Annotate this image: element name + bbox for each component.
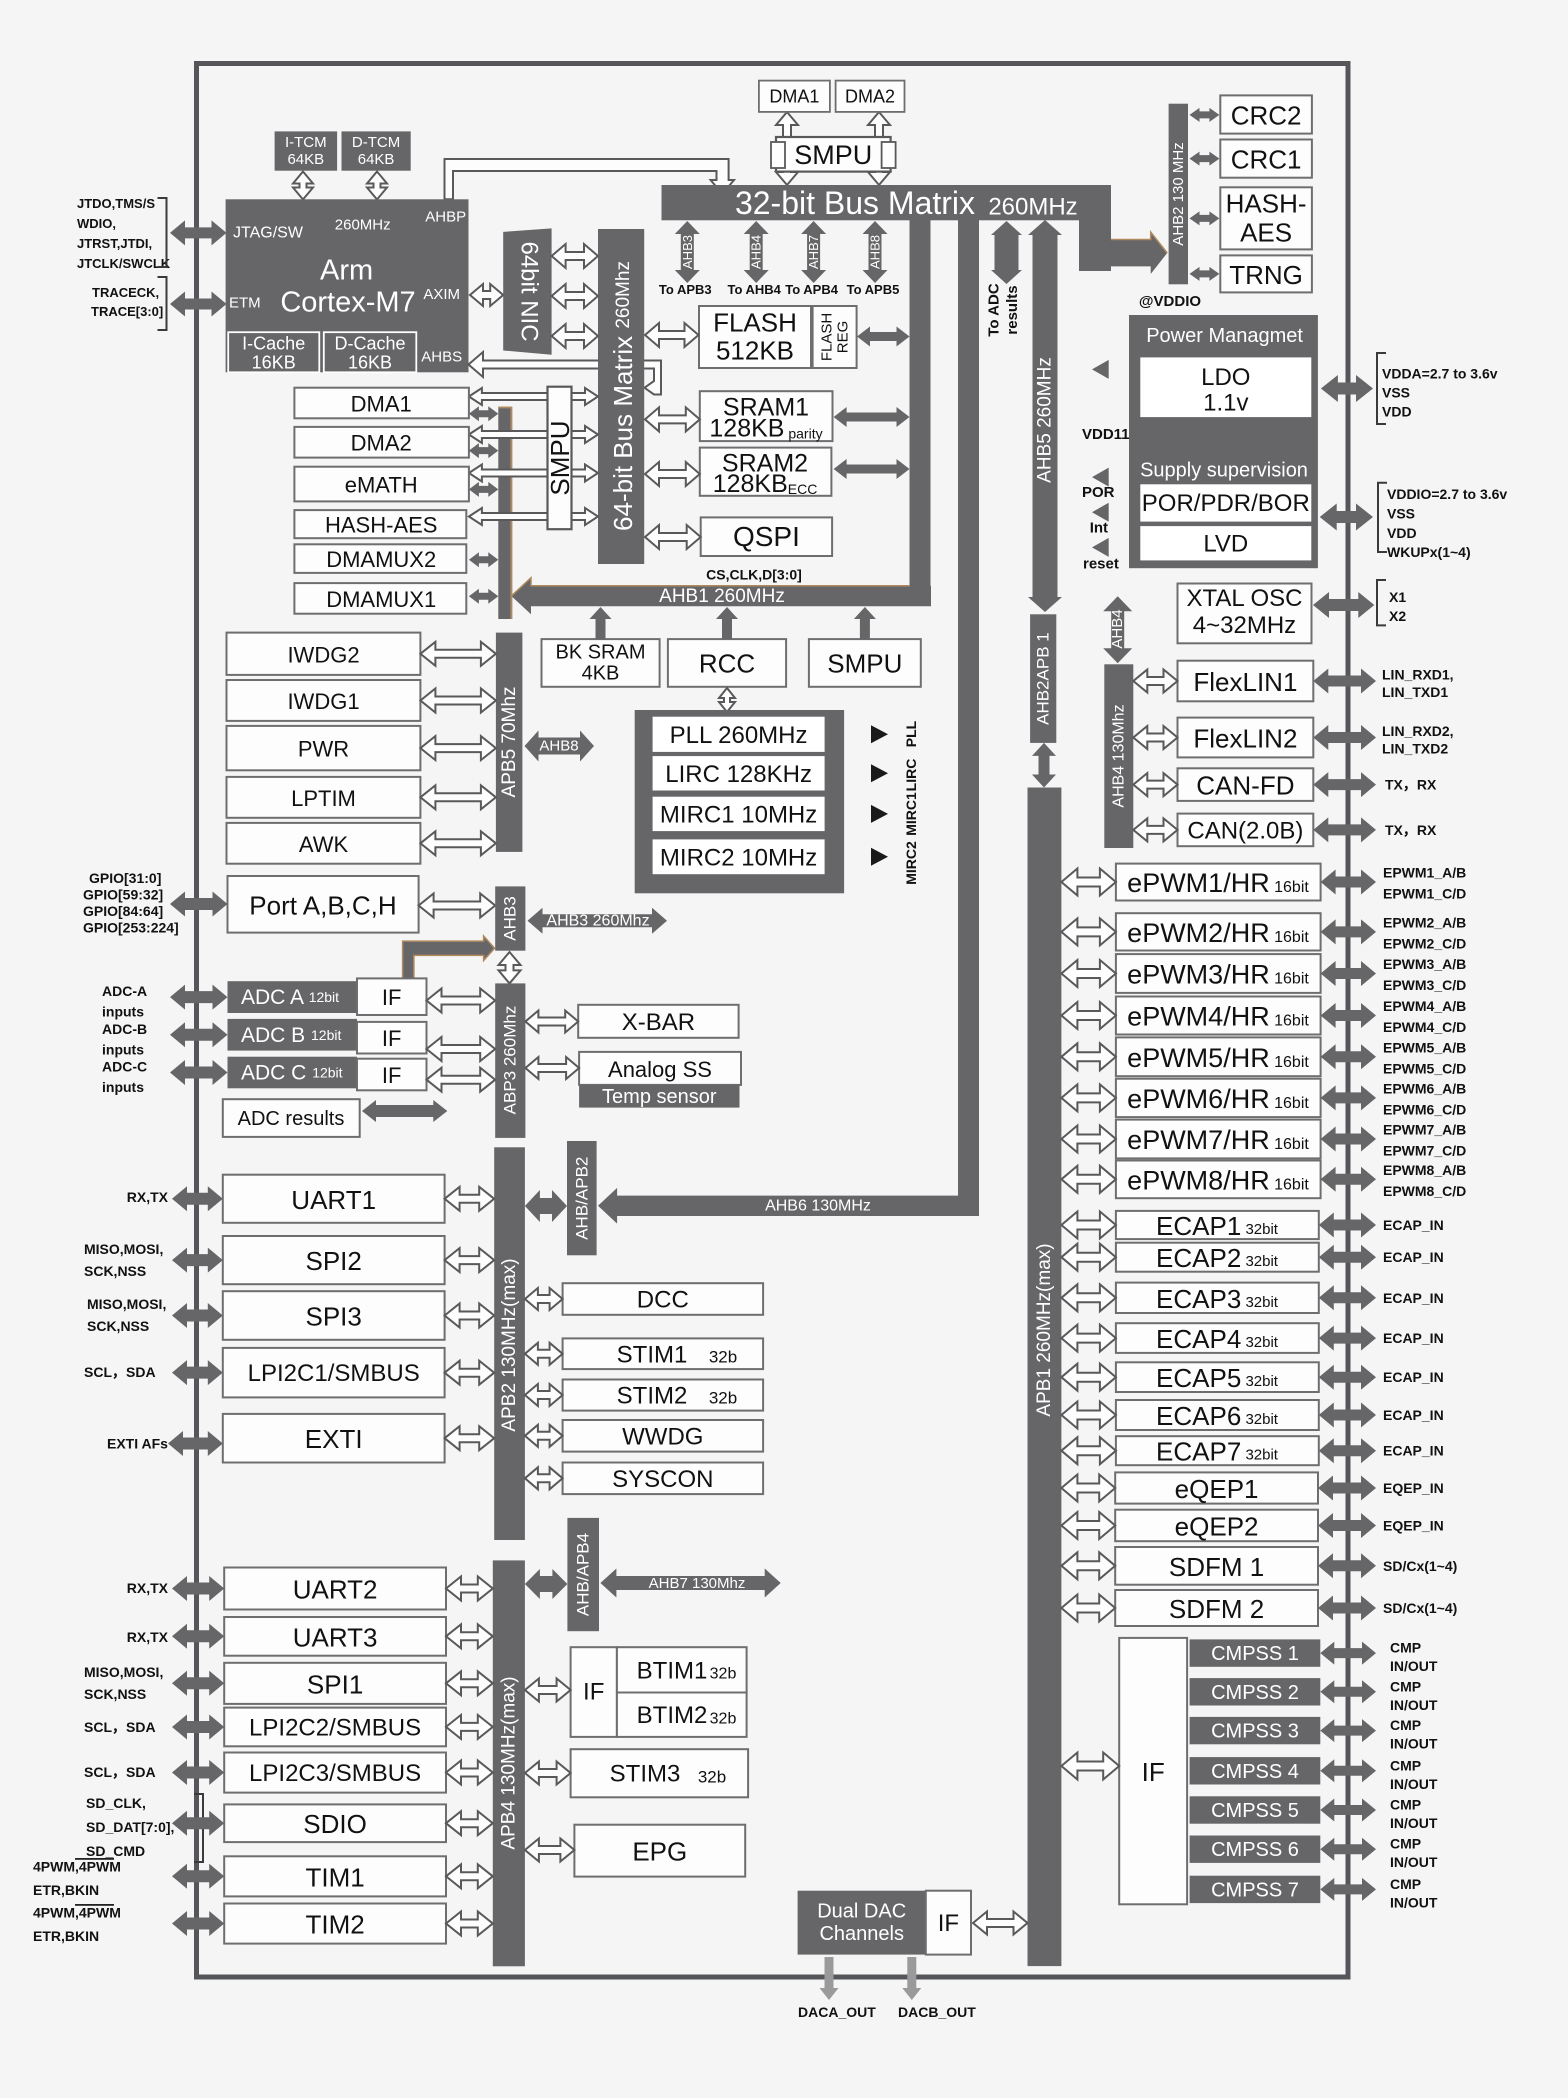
svg-text:results: results bbox=[1004, 285, 1021, 334]
svg-text:CMP: CMP bbox=[1390, 1836, 1421, 1852]
svg-text:WKUPx(1~4): WKUPx(1~4) bbox=[1387, 544, 1471, 560]
svg-text:SDIO: SDIO bbox=[303, 1809, 367, 1839]
svg-text:VDD: VDD bbox=[1382, 404, 1412, 420]
svg-text:AWK: AWK bbox=[299, 832, 349, 857]
svg-text:EPWM2_A/B: EPWM2_A/B bbox=[1383, 914, 1466, 930]
svg-text:ECAP_IN: ECAP_IN bbox=[1383, 1443, 1444, 1459]
svg-text:IF: IF bbox=[1142, 1757, 1165, 1787]
svg-text:MIRC2: MIRC2 bbox=[903, 841, 919, 885]
svg-text:Cortex-M7: Cortex-M7 bbox=[280, 287, 415, 319]
svg-text:1.1v: 1.1v bbox=[1203, 390, 1248, 417]
svg-text:GPIO[31:0]: GPIO[31:0] bbox=[89, 870, 161, 886]
svg-text:eMATH: eMATH bbox=[345, 473, 418, 498]
svg-text:IWDG1: IWDG1 bbox=[287, 689, 359, 714]
svg-text:CMP: CMP bbox=[1390, 1757, 1421, 1773]
svg-text:CMP: CMP bbox=[1390, 1876, 1421, 1892]
svg-text:GPIO[253:224]: GPIO[253:224] bbox=[83, 919, 179, 935]
svg-text:HASH-: HASH- bbox=[1226, 189, 1307, 219]
svg-text:EQEP_IN: EQEP_IN bbox=[1383, 1480, 1444, 1496]
svg-text:LIN_RXD1,: LIN_RXD1, bbox=[1382, 667, 1454, 683]
svg-text:WWDG: WWDG bbox=[622, 1423, 703, 1450]
svg-text:EXTI AFs: EXTI AFs bbox=[107, 1436, 168, 1452]
svg-text:32b: 32b bbox=[709, 1389, 737, 1408]
svg-text:DACA_OUT: DACA_OUT bbox=[798, 2004, 876, 2020]
svg-text:CMP: CMP bbox=[1390, 1640, 1421, 1656]
svg-text:ECAP_IN: ECAP_IN bbox=[1383, 1290, 1444, 1306]
svg-text:IN/OUT: IN/OUT bbox=[1390, 1894, 1438, 1910]
svg-text:X1: X1 bbox=[1389, 589, 1406, 605]
svg-text:SD/Cx(1~4): SD/Cx(1~4) bbox=[1383, 1600, 1457, 1616]
svg-text:VSS: VSS bbox=[1382, 385, 1410, 401]
svg-text:FlexLIN1: FlexLIN1 bbox=[1193, 667, 1297, 697]
svg-text:CRC2: CRC2 bbox=[1231, 101, 1302, 131]
svg-text:64bit NIC: 64bit NIC bbox=[516, 241, 543, 341]
svg-text:AHB7: AHB7 bbox=[806, 235, 821, 269]
svg-text:Arm: Arm bbox=[320, 255, 373, 287]
svg-text:EPWM1_A/B: EPWM1_A/B bbox=[1383, 865, 1466, 881]
svg-text:AHB4: AHB4 bbox=[1109, 609, 1126, 648]
svg-text:TIM2: TIM2 bbox=[305, 1910, 364, 1940]
svg-text:IN/OUT: IN/OUT bbox=[1390, 1776, 1438, 1792]
svg-text:SPI3: SPI3 bbox=[306, 1302, 362, 1332]
svg-text:JTDO,TMS/S: JTDO,TMS/S bbox=[77, 196, 155, 211]
svg-text:TRACECK,: TRACECK, bbox=[92, 285, 159, 300]
svg-text:EPWM5_C/D: EPWM5_C/D bbox=[1383, 1060, 1466, 1076]
svg-text:ADC-C: ADC-C bbox=[102, 1059, 147, 1075]
svg-text:GPIO[84:64]: GPIO[84:64] bbox=[83, 903, 163, 919]
svg-text:32b: 32b bbox=[710, 1711, 737, 1728]
svg-text:APB2 130MHz(max): APB2 130MHz(max) bbox=[499, 1258, 520, 1431]
svg-text:DMAMUX2: DMAMUX2 bbox=[326, 547, 436, 572]
svg-text:IF: IF bbox=[583, 1679, 604, 1706]
svg-text:UART3: UART3 bbox=[293, 1622, 378, 1652]
svg-text:LPI2C1/SMBUS: LPI2C1/SMBUS bbox=[248, 1360, 420, 1387]
svg-text:512KB: 512KB bbox=[716, 336, 794, 366]
svg-text:VDDA=2.7 to 3.6v: VDDA=2.7 to 3.6v bbox=[1382, 365, 1498, 381]
svg-text:CMP: CMP bbox=[1390, 1717, 1421, 1733]
svg-text:AHB1 260MHz: AHB1 260MHz bbox=[659, 586, 785, 607]
svg-text:IN/OUT: IN/OUT bbox=[1390, 1736, 1438, 1752]
svg-text:AES: AES bbox=[1240, 218, 1292, 248]
svg-text:4PWM,4PWM: 4PWM,4PWM bbox=[33, 1905, 121, 1921]
svg-text:IF: IF bbox=[382, 1026, 402, 1051]
svg-text:EPWM2_C/D: EPWM2_C/D bbox=[1383, 935, 1466, 951]
svg-text:EPWM7_A/B: EPWM7_A/B bbox=[1383, 1122, 1466, 1138]
svg-text:SYSCON: SYSCON bbox=[612, 1466, 713, 1493]
svg-text:AHB2APB 1: AHB2APB 1 bbox=[1034, 632, 1053, 725]
svg-text:Temp sensor: Temp sensor bbox=[602, 1086, 717, 1108]
svg-text:DCC: DCC bbox=[637, 1287, 689, 1314]
svg-text:EPG: EPG bbox=[632, 1837, 687, 1867]
svg-text:eQEP1: eQEP1 bbox=[1175, 1474, 1259, 1504]
svg-text:IN/OUT: IN/OUT bbox=[1390, 1854, 1438, 1870]
svg-text:IN/OUT: IN/OUT bbox=[1390, 1658, 1438, 1674]
svg-text:To APB4: To APB4 bbox=[785, 282, 838, 297]
svg-text:I-Cache: I-Cache bbox=[242, 334, 305, 354]
svg-text:AHB/APB4: AHB/APB4 bbox=[574, 1533, 593, 1616]
svg-text:DMA1: DMA1 bbox=[769, 87, 819, 107]
svg-text:EPWM8_C/D: EPWM8_C/D bbox=[1383, 1183, 1466, 1199]
svg-text:AHB/APB2: AHB/APB2 bbox=[572, 1157, 591, 1240]
svg-text:16KB: 16KB bbox=[348, 353, 392, 373]
svg-text:AHBS: AHBS bbox=[421, 348, 462, 365]
svg-text:XTAL OSC: XTAL OSC bbox=[1186, 585, 1302, 612]
svg-text:32-bit Bus Matrix: 32-bit Bus Matrix bbox=[735, 185, 975, 221]
svg-text:LPI2C3/SMBUS: LPI2C3/SMBUS bbox=[249, 1760, 421, 1787]
svg-text:FlexLIN2: FlexLIN2 bbox=[1193, 724, 1297, 754]
svg-text:ECAP_IN: ECAP_IN bbox=[1383, 1330, 1444, 1346]
svg-text:RX,TX: RX,TX bbox=[127, 1189, 169, 1205]
svg-text:ADC-A: ADC-A bbox=[102, 983, 147, 999]
svg-text:SCL，SDA: SCL，SDA bbox=[84, 1764, 156, 1780]
svg-text:CMPSS 2: CMPSS 2 bbox=[1211, 1682, 1299, 1704]
svg-text:AHB8: AHB8 bbox=[868, 235, 883, 269]
svg-text:IN/OUT: IN/OUT bbox=[1390, 1697, 1438, 1713]
svg-text:4PWM,4PWM: 4PWM,4PWM bbox=[33, 1859, 121, 1875]
svg-text:LIN_TXD2: LIN_TXD2 bbox=[1382, 741, 1448, 757]
svg-text:TX，RX: TX，RX bbox=[1385, 822, 1437, 838]
svg-text:IWDG2: IWDG2 bbox=[287, 642, 359, 667]
svg-text:IF: IF bbox=[382, 1063, 402, 1088]
svg-text:ECAP_IN: ECAP_IN bbox=[1383, 1217, 1444, 1233]
svg-text:ADC results: ADC results bbox=[238, 1108, 345, 1130]
svg-text:32b: 32b bbox=[709, 1347, 737, 1366]
svg-text:@VDDIO: @VDDIO bbox=[1139, 293, 1201, 310]
svg-text:DACB_OUT: DACB_OUT bbox=[898, 2004, 976, 2020]
svg-text:ABP3 260Mhz: ABP3 260Mhz bbox=[500, 1006, 519, 1115]
svg-text:ECAP_IN: ECAP_IN bbox=[1383, 1407, 1444, 1423]
svg-text:ETR,BKIN: ETR,BKIN bbox=[33, 1882, 99, 1898]
svg-text:Port A,B,C,H: Port A,B,C,H bbox=[249, 890, 396, 920]
svg-text:260MHz: 260MHz bbox=[988, 194, 1077, 221]
svg-text:Supply supervision: Supply supervision bbox=[1140, 459, 1308, 481]
svg-text:FLASH: FLASH bbox=[819, 313, 836, 361]
svg-text:EPWM1_C/D: EPWM1_C/D bbox=[1383, 886, 1466, 902]
svg-text:X-BAR: X-BAR bbox=[622, 1009, 695, 1036]
svg-text:CAN-FD: CAN-FD bbox=[1196, 771, 1294, 801]
svg-text:EXTI: EXTI bbox=[305, 1424, 363, 1454]
svg-text:DMA2: DMA2 bbox=[351, 431, 412, 456]
svg-text:STIM3: STIM3 bbox=[610, 1761, 681, 1788]
svg-text:SCL，SDA: SCL，SDA bbox=[84, 1719, 156, 1735]
svg-text:SDFM 1: SDFM 1 bbox=[1169, 1552, 1264, 1582]
svg-text:64KB: 64KB bbox=[287, 151, 324, 168]
svg-text:32b: 32b bbox=[698, 1768, 726, 1787]
svg-text:LDO: LDO bbox=[1201, 364, 1250, 391]
svg-text:RX,TX: RX,TX bbox=[127, 1629, 169, 1645]
svg-text:AHB7 130Mhz: AHB7 130Mhz bbox=[649, 1575, 746, 1592]
svg-text:CMP: CMP bbox=[1390, 1797, 1421, 1813]
svg-text:SCK,NSS: SCK,NSS bbox=[87, 1318, 149, 1334]
svg-text:SPI1: SPI1 bbox=[307, 1669, 363, 1699]
svg-text:AHB4 130Mhz: AHB4 130Mhz bbox=[1110, 704, 1127, 807]
svg-text:VDDIO=2.7 to 3.6v: VDDIO=2.7 to 3.6v bbox=[1387, 486, 1507, 502]
svg-text:AHB4: AHB4 bbox=[749, 235, 764, 269]
svg-text:ECAP_IN: ECAP_IN bbox=[1383, 1249, 1444, 1265]
svg-text:JTAG/SW: JTAG/SW bbox=[233, 225, 304, 242]
svg-text:ETM: ETM bbox=[229, 295, 261, 312]
svg-text:APB4 130MHz(max): APB4 130MHz(max) bbox=[498, 1676, 519, 1849]
svg-text:EPWM6_C/D: EPWM6_C/D bbox=[1383, 1101, 1466, 1117]
svg-text:AHB3: AHB3 bbox=[500, 896, 519, 940]
svg-text:EPWM4_C/D: EPWM4_C/D bbox=[1383, 1019, 1466, 1035]
svg-text:AHB3 260Mhz: AHB3 260Mhz bbox=[546, 912, 649, 929]
svg-text:inputs: inputs bbox=[102, 1004, 144, 1020]
svg-text:HASH-AES: HASH-AES bbox=[325, 513, 437, 538]
svg-text:SD/Cx(1~4): SD/Cx(1~4) bbox=[1383, 1558, 1457, 1574]
svg-text:MISO,MOSI,: MISO,MOSI, bbox=[84, 1241, 163, 1257]
svg-text:TX，RX: TX，RX bbox=[1385, 777, 1437, 793]
svg-text:SD_CLK,: SD_CLK, bbox=[86, 1795, 146, 1811]
svg-text:RX,TX: RX,TX bbox=[127, 1580, 169, 1596]
svg-text:DMA2: DMA2 bbox=[845, 87, 895, 107]
svg-text:CMPSS 3: CMPSS 3 bbox=[1211, 1721, 1299, 1743]
svg-text:VSS: VSS bbox=[1387, 506, 1415, 522]
svg-text:FLASH: FLASH bbox=[713, 308, 797, 338]
svg-text:CMPSS 6: CMPSS 6 bbox=[1211, 1839, 1299, 1861]
svg-text:X2: X2 bbox=[1389, 608, 1406, 624]
svg-text:AHB8: AHB8 bbox=[539, 738, 578, 755]
svg-text:To APB5: To APB5 bbox=[847, 282, 900, 297]
svg-text:LIRC: LIRC bbox=[903, 759, 919, 792]
svg-text:CMPSS 5: CMPSS 5 bbox=[1211, 1800, 1299, 1822]
svg-text:TRACE[3:0]: TRACE[3:0] bbox=[91, 304, 163, 319]
svg-text:PWR: PWR bbox=[298, 737, 349, 762]
svg-text:APB5 70Mhz: APB5 70Mhz bbox=[499, 687, 520, 798]
svg-text:PLL 260MHz: PLL 260MHz bbox=[670, 722, 808, 749]
svg-text:QSPI: QSPI bbox=[733, 521, 800, 552]
svg-text:PLL: PLL bbox=[903, 720, 919, 747]
svg-text:POR/PDR/BOR: POR/PDR/BOR bbox=[1142, 490, 1310, 517]
svg-text:inputs: inputs bbox=[102, 1042, 144, 1058]
svg-text:SCK,NSS: SCK,NSS bbox=[84, 1686, 146, 1702]
svg-text:DMA1: DMA1 bbox=[351, 392, 412, 417]
svg-text:MIRC2 10MHz: MIRC2 10MHz bbox=[660, 844, 817, 871]
svg-text:inputs: inputs bbox=[102, 1079, 144, 1095]
svg-text:Power Managmet: Power Managmet bbox=[1146, 325, 1303, 347]
svg-text:EPWM8_A/B: EPWM8_A/B bbox=[1383, 1162, 1466, 1178]
svg-text:Analog SS: Analog SS bbox=[608, 1057, 712, 1082]
svg-text:TRNG: TRNG bbox=[1229, 260, 1303, 290]
svg-text:VDD: VDD bbox=[1387, 525, 1417, 541]
svg-text:SD_CMD: SD_CMD bbox=[86, 1843, 145, 1859]
svg-text:ECAP_IN: ECAP_IN bbox=[1383, 1369, 1444, 1385]
svg-text:STIM2: STIM2 bbox=[617, 1383, 688, 1410]
svg-text:UART2: UART2 bbox=[293, 1575, 378, 1605]
svg-text:ADC-B: ADC-B bbox=[102, 1021, 147, 1037]
svg-text:SCK,NSS: SCK,NSS bbox=[84, 1263, 146, 1279]
svg-text:BK SRAM: BK SRAM bbox=[555, 642, 645, 664]
svg-text:I-TCM: I-TCM bbox=[285, 134, 327, 151]
svg-text:AHB5 260MHz: AHB5 260MHz bbox=[1035, 357, 1056, 483]
svg-text:UART1: UART1 bbox=[291, 1185, 376, 1215]
svg-text:POR: POR bbox=[1082, 484, 1115, 501]
svg-text:4~32MHz: 4~32MHz bbox=[1193, 612, 1296, 639]
svg-text:LIN_TXD1: LIN_TXD1 bbox=[1382, 684, 1448, 700]
svg-text:SD_DAT[7:0],: SD_DAT[7:0], bbox=[86, 1819, 174, 1835]
svg-text:LIRC 128KHz: LIRC 128KHz bbox=[665, 761, 812, 788]
svg-text:MIRC1: MIRC1 bbox=[903, 792, 919, 836]
svg-text:SCL，SDA: SCL，SDA bbox=[84, 1364, 156, 1380]
svg-text:SPI2: SPI2 bbox=[306, 1246, 362, 1276]
svg-text:MISO,MOSI,: MISO,MOSI, bbox=[87, 1296, 166, 1312]
svg-text:CMPSS 7: CMPSS 7 bbox=[1211, 1879, 1299, 1901]
svg-text:RCC: RCC bbox=[699, 649, 755, 679]
svg-text:VDD11: VDD11 bbox=[1082, 426, 1130, 443]
svg-text:EPWM5_A/B: EPWM5_A/B bbox=[1383, 1039, 1466, 1055]
svg-text:SMPU: SMPU bbox=[827, 649, 902, 679]
svg-text:64KB: 64KB bbox=[358, 151, 395, 168]
svg-text:CAN(2.0B): CAN(2.0B) bbox=[1187, 817, 1303, 844]
svg-text:JTRST,JTDI,: JTRST,JTDI, bbox=[77, 236, 152, 251]
svg-text:SMPU: SMPU bbox=[545, 420, 575, 495]
svg-text:SDFM 2: SDFM 2 bbox=[1169, 1594, 1264, 1624]
svg-text:CRC1: CRC1 bbox=[1231, 145, 1302, 175]
svg-text:reset: reset bbox=[1083, 556, 1119, 573]
svg-text:REG: REG bbox=[835, 321, 852, 354]
svg-text:260MHz: 260MHz bbox=[335, 216, 391, 233]
svg-text:MIRC1 10MHz: MIRC1 10MHz bbox=[660, 801, 817, 828]
svg-text:TIM1: TIM1 bbox=[305, 1862, 364, 1892]
svg-text:AHB2 130 MHz: AHB2 130 MHz bbox=[1170, 142, 1187, 245]
svg-text:GPIO[59:32]: GPIO[59:32] bbox=[83, 886, 163, 902]
svg-text:To APB3: To APB3 bbox=[659, 282, 712, 297]
svg-text:AHBP: AHBP bbox=[425, 208, 466, 225]
svg-text:WDIO,: WDIO, bbox=[77, 216, 116, 231]
svg-text:Int: Int bbox=[1090, 520, 1108, 537]
svg-text:EPWM3_A/B: EPWM3_A/B bbox=[1383, 956, 1466, 972]
svg-text:EQEP_IN: EQEP_IN bbox=[1383, 1518, 1444, 1534]
svg-text:EPWM6_A/B: EPWM6_A/B bbox=[1383, 1080, 1466, 1096]
svg-text:Channels: Channels bbox=[819, 1923, 904, 1945]
svg-text:CMPSS 4: CMPSS 4 bbox=[1211, 1761, 1299, 1783]
svg-text:eQEP2: eQEP2 bbox=[1175, 1512, 1259, 1542]
svg-text:EPWM4_A/B: EPWM4_A/B bbox=[1383, 998, 1466, 1014]
svg-text:EPWM7_C/D: EPWM7_C/D bbox=[1383, 1143, 1466, 1159]
svg-text:16KB: 16KB bbox=[252, 353, 296, 373]
svg-text:APB1 260MHz(max): APB1 260MHz(max) bbox=[1034, 1243, 1055, 1416]
svg-text:MISO,MOSI,: MISO,MOSI, bbox=[84, 1664, 163, 1680]
svg-text:LPI2C2/SMBUS: LPI2C2/SMBUS bbox=[249, 1714, 421, 1741]
svg-text:To ADC: To ADC bbox=[986, 283, 1003, 336]
svg-text:AHB3: AHB3 bbox=[680, 235, 695, 269]
svg-text:LPTIM: LPTIM bbox=[291, 786, 356, 811]
svg-text:BTIM2: BTIM2 bbox=[637, 1702, 708, 1729]
svg-text:IF: IF bbox=[382, 985, 402, 1010]
svg-text:Dual DAC: Dual DAC bbox=[817, 1901, 906, 1923]
svg-text:LIN_RXD2,: LIN_RXD2, bbox=[1382, 723, 1454, 739]
svg-text:CS,CLK,D[3:0]: CS,CLK,D[3:0] bbox=[706, 567, 802, 583]
svg-text:AXIM: AXIM bbox=[423, 286, 460, 303]
svg-text:ETR,BKIN: ETR,BKIN bbox=[33, 1928, 99, 1944]
svg-text:To AHB4: To AHB4 bbox=[727, 282, 781, 297]
svg-text:D-Cache: D-Cache bbox=[334, 334, 405, 354]
svg-text:D-TCM: D-TCM bbox=[352, 134, 400, 151]
svg-text:IN/OUT: IN/OUT bbox=[1390, 1815, 1438, 1831]
svg-text:CMP: CMP bbox=[1390, 1678, 1421, 1694]
svg-text:BTIM1: BTIM1 bbox=[637, 1657, 708, 1684]
svg-text:EPWM3_C/D: EPWM3_C/D bbox=[1383, 977, 1466, 993]
svg-text:JTCLK/SWCLK: JTCLK/SWCLK bbox=[77, 256, 171, 271]
svg-text:CMPSS 1: CMPSS 1 bbox=[1211, 1643, 1299, 1665]
svg-text:DMAMUX1: DMAMUX1 bbox=[326, 587, 436, 612]
svg-text:STIM1: STIM1 bbox=[617, 1341, 688, 1368]
svg-text:SMPU: SMPU bbox=[794, 140, 872, 170]
svg-text:32b: 32b bbox=[710, 1666, 737, 1683]
svg-text:AHB6 130MHz: AHB6 130MHz bbox=[765, 1197, 871, 1214]
svg-text:IF: IF bbox=[938, 1910, 959, 1937]
svg-text:4KB: 4KB bbox=[582, 663, 620, 685]
svg-text:LVD: LVD bbox=[1203, 530, 1248, 557]
